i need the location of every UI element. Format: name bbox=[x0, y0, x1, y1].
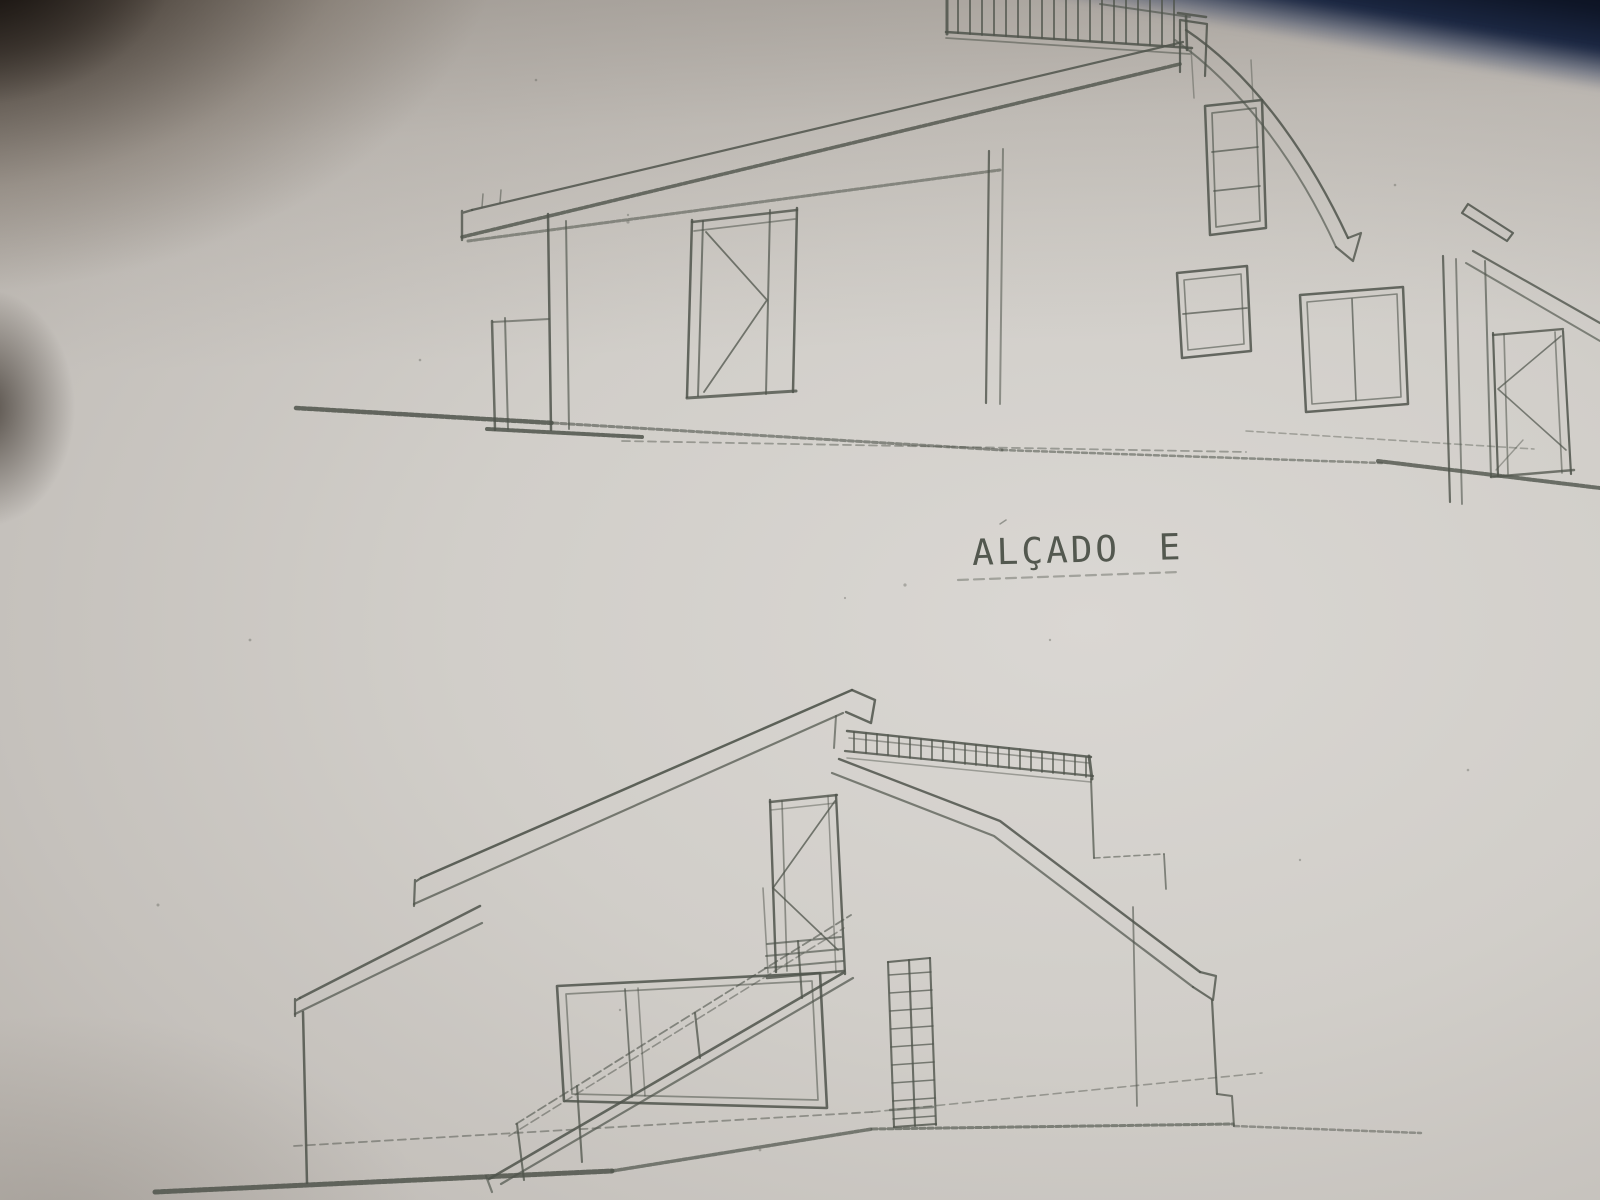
wide-two-pane-window bbox=[1300, 287, 1408, 412]
upper-left-wall bbox=[487, 214, 642, 437]
upper-ridge-post bbox=[1180, 20, 1253, 99]
upper-elevation-drawing bbox=[296, 0, 1600, 504]
annex-door bbox=[1491, 329, 1574, 477]
upper-roof-fascia bbox=[462, 42, 1183, 241]
lower-elevation-drawing bbox=[155, 690, 1421, 1192]
upper-entry-door bbox=[687, 208, 797, 398]
upper-ground-line bbox=[296, 408, 1600, 488]
annex-roof bbox=[1462, 204, 1600, 477]
descending-roof-band bbox=[832, 759, 1216, 1106]
external-stair bbox=[486, 915, 853, 1192]
lower-left-wall bbox=[303, 1012, 307, 1183]
lower-roof-fascia bbox=[295, 690, 875, 1016]
lower-roof-railing bbox=[845, 731, 1093, 782]
stepped-parapet bbox=[1091, 779, 1166, 889]
sliding-window bbox=[557, 973, 827, 1108]
lower-ground-line bbox=[155, 1073, 1421, 1192]
photographed-sketch: ALÇADO E bbox=[0, 0, 1600, 1200]
upper-right-wall bbox=[1443, 256, 1462, 504]
upper-roof-railing bbox=[946, 0, 1206, 54]
lower-right-wall bbox=[1212, 1000, 1234, 1126]
upper-level-door bbox=[763, 795, 845, 978]
tall-three-pane-window bbox=[1205, 100, 1266, 235]
elevation-caption: ALÇADO E bbox=[971, 527, 1183, 574]
small-two-pane-window bbox=[1177, 266, 1251, 358]
elevation-sketch-svg bbox=[0, 0, 1600, 1200]
curved-gable-roof bbox=[1175, 30, 1361, 261]
grille-window bbox=[888, 958, 936, 1127]
upper-mid-wall bbox=[986, 149, 1003, 404]
